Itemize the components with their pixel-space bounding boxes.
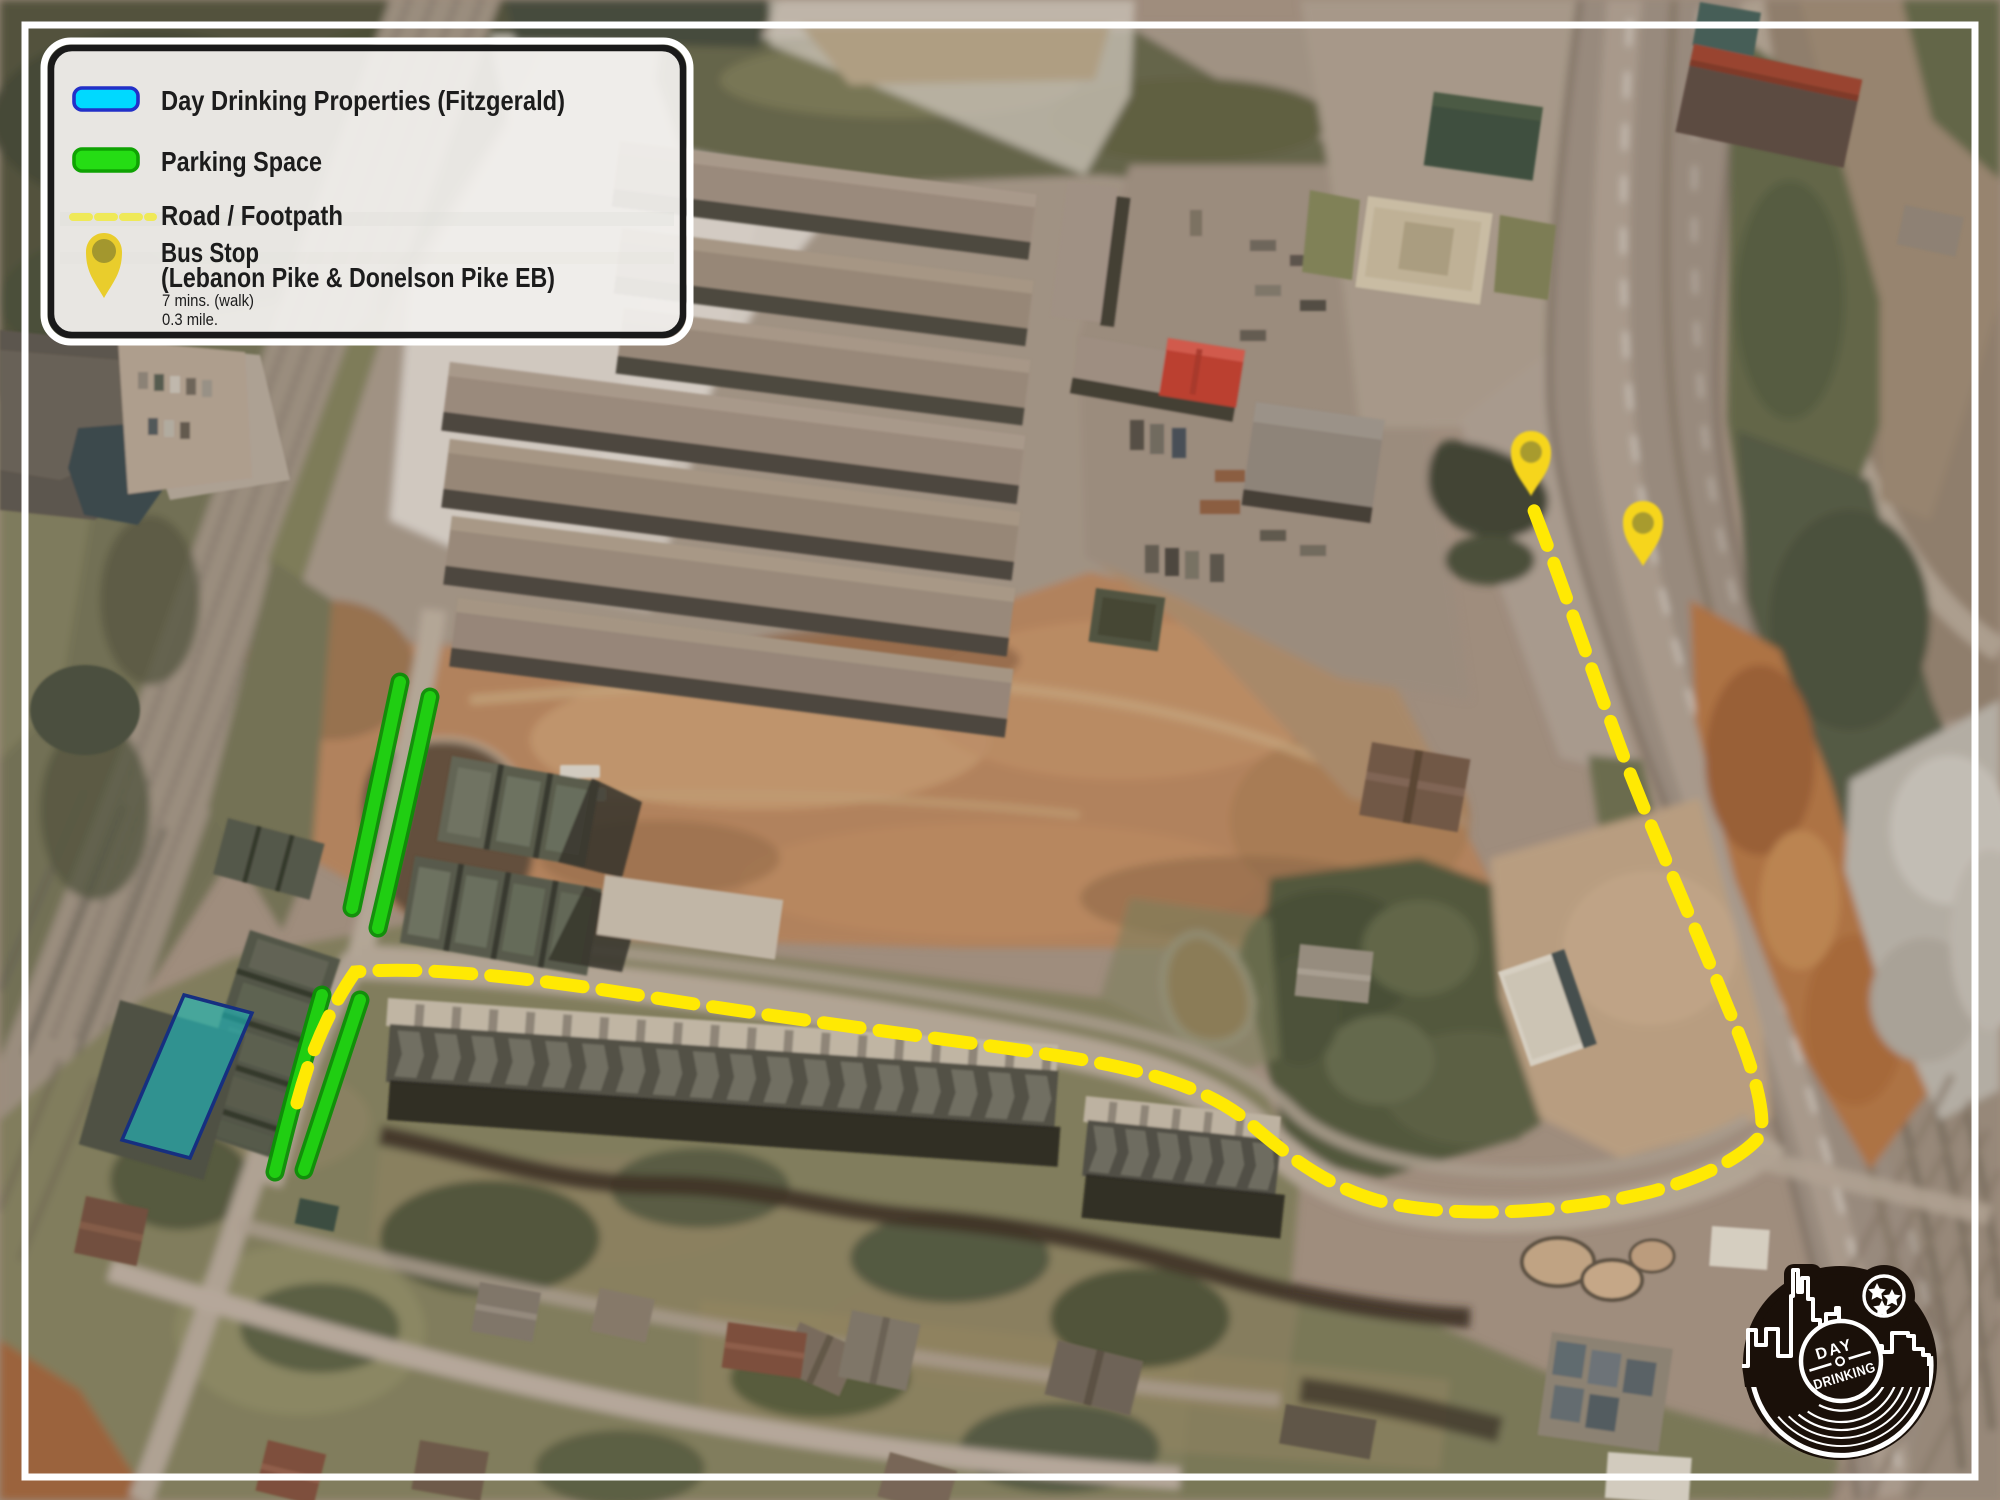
svg-text:7 mins. (walk): 7 mins. (walk) [162,291,254,310]
svg-text:(Lebanon Pike & Donelson Pike: (Lebanon Pike & Donelson Pike EB) [161,262,555,293]
svg-text:Road / Footpath: Road / Footpath [161,200,343,231]
svg-text:Day Drinking Properties (Fitzg: Day Drinking Properties (Fitzgerald) [161,85,565,116]
svg-text:0.3 mile.: 0.3 mile. [162,310,218,329]
svg-text:Parking Space: Parking Space [161,146,322,177]
